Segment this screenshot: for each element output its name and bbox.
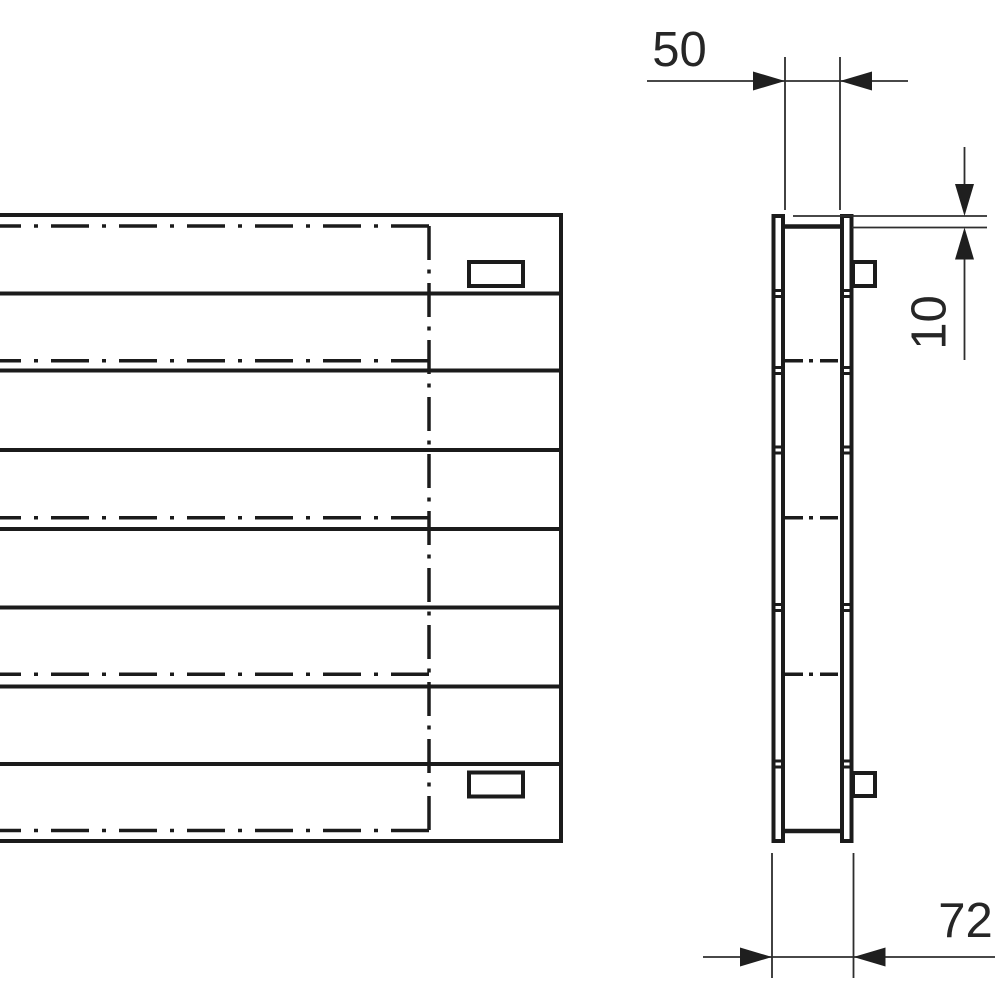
front-view — [0, 213, 562, 843]
dim-72-arrow-left — [740, 948, 772, 967]
dim-10-arrow-up — [955, 228, 974, 260]
mounting-bracket-top — [469, 262, 523, 286]
dim-50-arrow-left — [753, 72, 785, 91]
dim-50-extension-lines — [785, 57, 840, 210]
dimension-label-72: 72 — [938, 894, 993, 948]
side-view — [772, 216, 876, 841]
dimension-label-50: 50 — [652, 23, 707, 77]
dim-72-arrow-right — [854, 948, 886, 967]
dim-10-arrow-down — [955, 184, 974, 216]
slat-boundary-lines — [0, 215, 562, 841]
dimension-72: 72 — [703, 853, 995, 978]
mounting-bracket-bottom — [469, 773, 523, 797]
rail-front — [774, 216, 784, 841]
dimension-50: 50 — [647, 23, 908, 210]
side-tab-bottom — [853, 773, 875, 796]
side-tab-top — [853, 262, 875, 286]
dimension-10: 10 — [793, 147, 987, 360]
technical-drawing-canvas: 50 10 72 — [0, 0, 1000, 1000]
dim-72-extension-lines — [772, 853, 854, 978]
dim-50-arrow-right — [840, 72, 872, 91]
rail-back — [842, 216, 852, 841]
radiator-technical-drawing: 50 10 72 — [0, 0, 1000, 1000]
dimension-label-10: 10 — [903, 295, 957, 350]
